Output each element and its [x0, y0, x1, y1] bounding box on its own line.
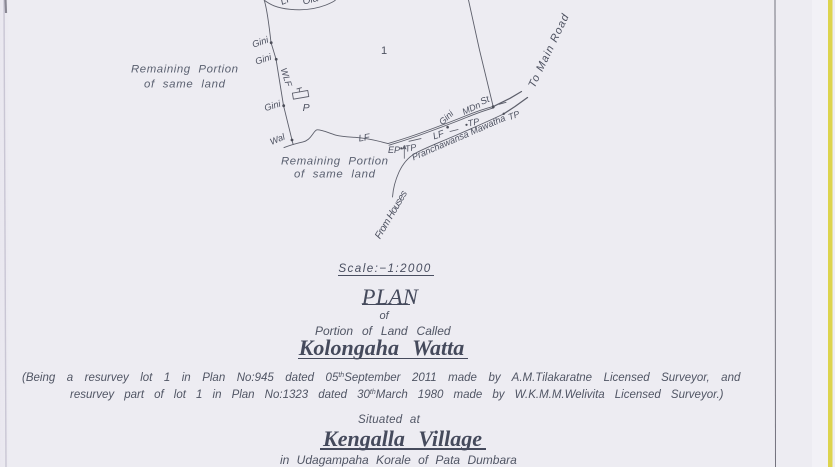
svg-text:Remaining Portion: Remaining Portion [281, 156, 388, 168]
svg-text:1: 1 [381, 45, 387, 57]
svg-text:P: P [303, 102, 310, 114]
svg-text:of same land: of same land [294, 169, 376, 181]
svg-text:Remaining Portion: Remaining Portion [131, 64, 238, 76]
svg-text:EP: EP [388, 145, 400, 155]
svg-text:of same land: of same land [144, 79, 226, 91]
